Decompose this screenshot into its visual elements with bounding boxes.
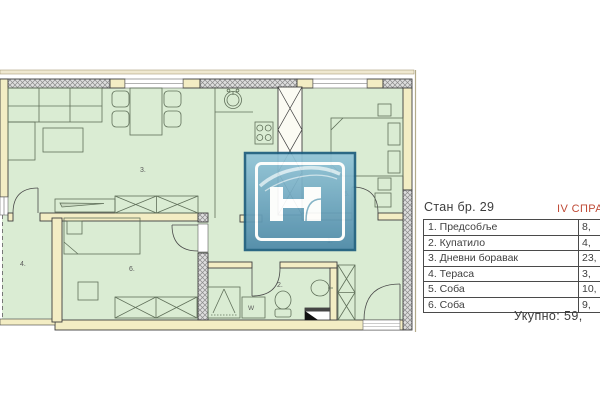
room-label-living: 3. <box>140 167 146 174</box>
room-label-bedroom-small: 6. <box>129 266 135 273</box>
room-name: 5. Соба <box>428 283 465 295</box>
room-name: 2. Купатило <box>428 237 485 249</box>
window-left-wall <box>0 197 8 215</box>
room-name: 1. Предсобље <box>428 221 497 233</box>
floorplan-page: 3. 4. 6. 2. 5. 1. W Стан бр. 29 IV СПРАТ… <box>0 0 600 400</box>
window-bedroom-main <box>313 79 367 88</box>
room-label-bathroom: 2. <box>277 282 283 289</box>
room-name: 3. Дневни боравак <box>428 252 518 264</box>
room-area: 10, <box>578 282 600 297</box>
room-name: 4. Тераса <box>428 268 474 280</box>
floor-label: IV СПРАТ <box>557 203 600 215</box>
room-area-table: 1. Предсобље 8, 2. Купатило 4, 3. Дневни… <box>423 219 600 313</box>
room-area: 4, <box>578 236 600 251</box>
logo-pillar-left <box>270 187 283 221</box>
watermark-logo <box>245 153 355 250</box>
table-row: 2. Купатило 4, <box>424 236 600 252</box>
apartment-title: Стан бр. 29 <box>424 200 494 214</box>
logo-lintel <box>283 199 304 208</box>
room-area: 3, <box>578 267 600 282</box>
vanity-cabinet <box>305 308 330 320</box>
washer-label: W <box>248 305 255 312</box>
room-name: 6. Соба <box>428 299 465 311</box>
room-area: 8, <box>578 220 600 235</box>
room-label-terrace: 4. <box>20 261 26 268</box>
table-row: 4. Тераса 3, <box>424 267 600 283</box>
window-living <box>125 79 183 88</box>
total-area-label: Укупно: 59, <box>514 309 583 323</box>
table-row: 3. Дневни боравак 23, <box>424 251 600 267</box>
table-row: 1. Предсобље 8, <box>424 220 600 236</box>
table-row: 5. Соба 10, <box>424 282 600 298</box>
room-area: 23, <box>578 251 600 266</box>
floor-plan-svg: 3. 4. 6. 2. 5. 1. W <box>0 0 600 400</box>
